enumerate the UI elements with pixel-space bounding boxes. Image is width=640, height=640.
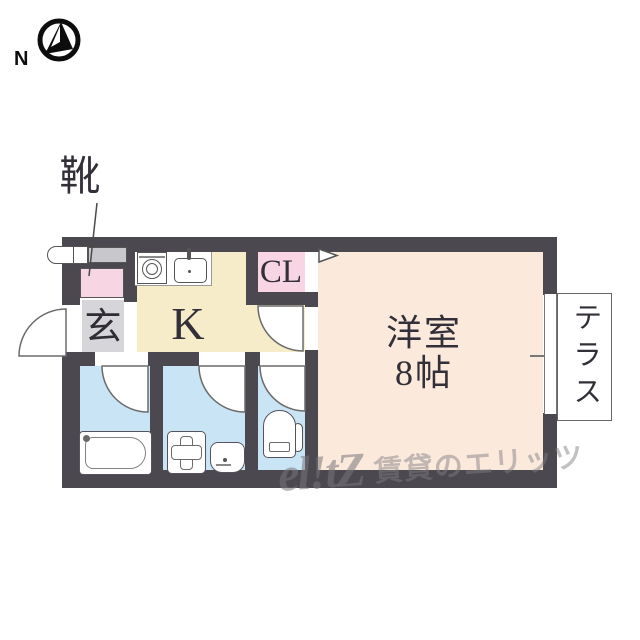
stove-top-line (139, 256, 165, 258)
western-room-label: 洋室 8帖 (354, 313, 494, 393)
wall-mid-1 (62, 352, 95, 366)
watermark-text: 賃貸のエリッツ (372, 433, 584, 490)
kitchen-label: K (158, 296, 218, 352)
wall-closet-bottom (246, 292, 318, 305)
compass-north-label: N (14, 48, 28, 71)
wall-top (62, 237, 557, 252)
washer-drain-horizontal (171, 445, 202, 460)
wall-left-lower (62, 355, 80, 470)
terrace-window-icon (544, 294, 557, 414)
basin-faucet-line (216, 464, 231, 466)
shower-dot (83, 435, 90, 442)
bathtub-inner (85, 437, 146, 469)
faucet-icon (187, 248, 191, 260)
watermark-logo: el!tZ (276, 442, 366, 503)
entrance-door-panel-icon (73, 246, 88, 264)
wall-washroom-toilet (245, 366, 258, 470)
compass-icon (34, 14, 84, 64)
closet-label: CL (254, 253, 308, 291)
western-room-size: 8帖 (354, 353, 494, 393)
washbasin-icon (210, 442, 245, 473)
sink-drain-dot (188, 270, 191, 273)
wall-mid-2 (148, 352, 199, 366)
entrance-door-arc (19, 309, 66, 356)
entrance-door-cap-icon (47, 246, 74, 264)
terrace-label-box: テラス (557, 293, 612, 421)
floor-plan: テラス K CL 玄 洋室 8帖 靴 N el!tZ 賃貸のエリッツ (0, 0, 640, 640)
shoe-box (80, 268, 124, 298)
genkan-step (124, 302, 137, 352)
shoe-cabinet (88, 247, 127, 263)
terrace-label: テラス (569, 302, 599, 413)
wall-right-upper (543, 252, 557, 295)
western-room-name: 洋室 (354, 313, 494, 353)
stove-burner-inner (146, 263, 158, 275)
wall-mid-3 (245, 352, 260, 366)
genkan-label: 玄 (82, 306, 124, 350)
shoe-callout-label: 靴 (55, 154, 105, 200)
basin-faucet-dot (223, 458, 227, 462)
